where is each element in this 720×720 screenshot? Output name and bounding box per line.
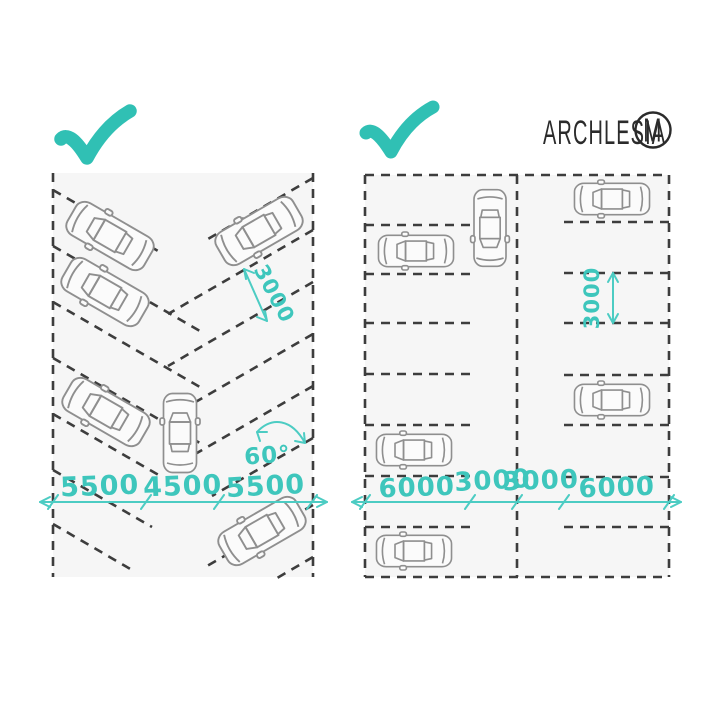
checkmark-right-icon [366, 107, 433, 152]
parking-diagram-canvas: ARCHLESIA M [0, 0, 720, 720]
brand-monogram-icon: M [643, 111, 663, 149]
slot-width-dimension: 3000 [580, 267, 618, 329]
brand-logo: ARCHLESIA M [543, 111, 671, 151]
left-parking-diagram: 3000 60° 5500 4500 5500 [40, 173, 327, 581]
bottom-dimension-chain: 5500 4500 5500 [40, 469, 327, 509]
dimension-label: 6000 [378, 472, 455, 505]
car-icon [574, 180, 649, 218]
dimension-label: 3000 [502, 465, 579, 498]
dimension-label: 3000 [580, 267, 604, 329]
car-icon [160, 394, 200, 473]
parking-standards-sheet: ARCHLESIA M [0, 0, 720, 720]
dimension-label: 4500 [143, 470, 223, 504]
car-icon [574, 381, 649, 419]
dimension-label: 6000 [578, 472, 655, 505]
dimension-label: 5500 [60, 470, 140, 504]
car-icon [471, 190, 510, 267]
car-icon [378, 232, 453, 270]
car-icon [376, 532, 451, 570]
checkmark-left-icon [61, 111, 130, 158]
car-icon [376, 431, 451, 469]
angle-label: 60° [243, 441, 291, 470]
dimension-label: 5500 [225, 469, 306, 504]
right-parking-diagram: 3000 6000 3000 3000 6000 [352, 175, 681, 577]
